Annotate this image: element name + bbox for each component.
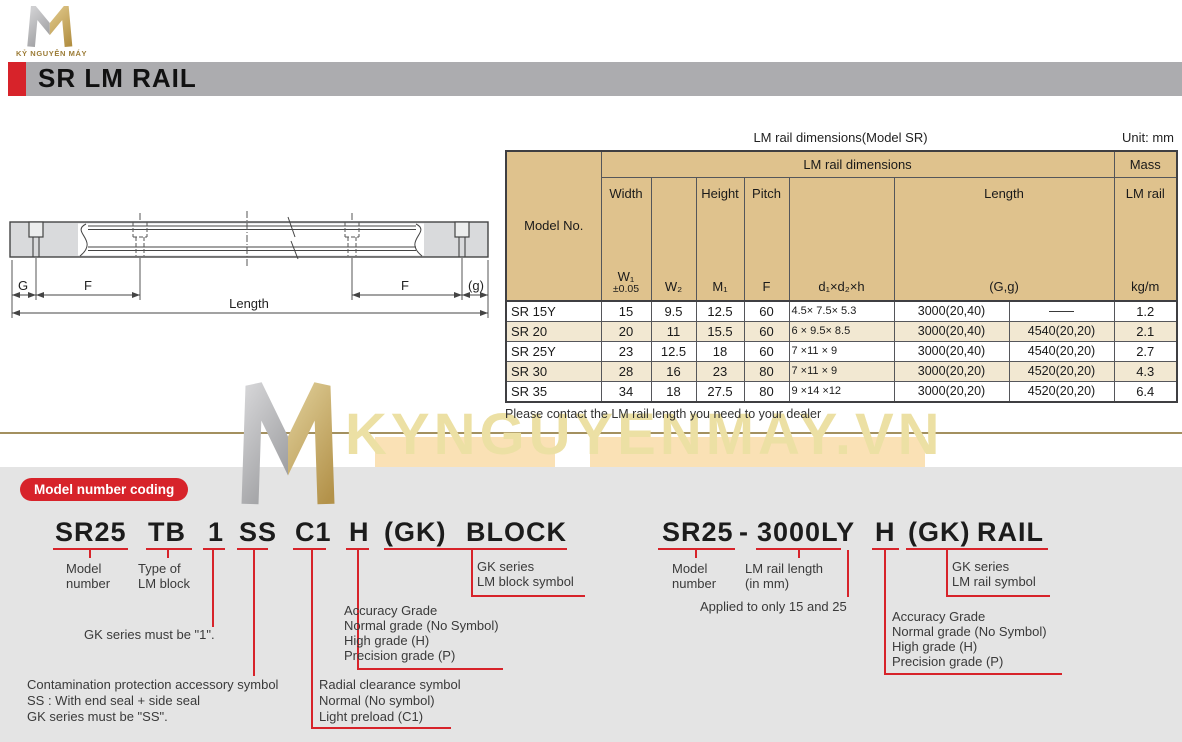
- cell-mass: 2.1: [1114, 321, 1177, 341]
- cell-w2: 18: [651, 381, 696, 402]
- length-top: Length: [984, 186, 1024, 201]
- col-header-model: Model No.: [506, 151, 601, 301]
- label-line: Normal grade (No Symbol): [344, 618, 499, 633]
- label-gk-series-block: GK series LM block symbol: [477, 559, 574, 589]
- cell-len2: 4520(20,20): [1009, 381, 1114, 402]
- label-line: Radial clearance symbol: [319, 677, 461, 693]
- cell-holes: 7 ×11 × 9: [789, 361, 894, 381]
- label-line: Precision grade (P): [892, 654, 1047, 669]
- callout-line: [798, 550, 800, 558]
- label-accuracy-grade-rail: Accuracy Grade Normal grade (No Symbol) …: [892, 609, 1047, 669]
- callout-line: [884, 550, 886, 673]
- underline: [203, 548, 225, 550]
- table-title: LM rail dimensions(Model SR): [505, 130, 1176, 145]
- table-row: SR 20 20 11 15.5 60 6 × 9.5× 8.5 3000(20…: [506, 321, 1177, 341]
- watermark-logo-icon: [236, 376, 340, 510]
- col-header-w1: Width W₁±0.05: [601, 177, 651, 301]
- note-applied: Applied to only 15 and 25: [700, 599, 847, 614]
- cell-holes: 9 ×14 ×12: [789, 381, 894, 402]
- code-token-gk: (GK): [908, 517, 970, 548]
- dim-label-f-right: F: [401, 278, 409, 293]
- cell-w1: 28: [601, 361, 651, 381]
- label-rail-length: LM rail length (in mm): [745, 561, 823, 591]
- underline: [293, 548, 326, 550]
- code-token-dash: -: [739, 517, 749, 548]
- table-row: SR 15Y 15 9.5 12.5 60 4.5× 7.5× 5.3 3000…: [506, 301, 1177, 322]
- code-token-model: SR25: [55, 517, 127, 548]
- underline: [384, 548, 567, 550]
- cell-mass: 2.7: [1114, 341, 1177, 361]
- label-radial-clearance: Radial clearance symbol Normal (No symbo…: [319, 677, 461, 725]
- cell-m1: 15.5: [696, 321, 744, 341]
- mass-sym: kg/m: [1131, 279, 1159, 294]
- label-type-of-block: Type of LM block: [138, 561, 202, 591]
- callout-line: [357, 668, 503, 670]
- label-line: Accuracy Grade: [892, 609, 1047, 624]
- note-gk-one: GK series must be "1".: [84, 627, 215, 642]
- underline: [146, 548, 192, 550]
- table-row: SR 25Y 23 12.5 18 60 7 ×11 × 9 3000(20,4…: [506, 341, 1177, 361]
- label-model-number: Model number: [66, 561, 124, 591]
- m1-sym: M₁: [712, 279, 727, 294]
- code-token-h: H: [875, 517, 896, 548]
- label-line: GK series: [952, 559, 1036, 574]
- underline: [906, 548, 1048, 550]
- f-sym: F: [763, 279, 771, 294]
- cell-len1: 3000(20,40): [894, 321, 1009, 341]
- code-token-h: H: [349, 517, 370, 548]
- cell-len2: ——: [1009, 301, 1114, 322]
- model-number-coding-badge: Model number coding: [20, 478, 188, 501]
- label-line: Normal grade (No Symbol): [892, 624, 1047, 639]
- cell-w2: 12.5: [651, 341, 696, 361]
- label-line: SS : With end seal + side seal: [27, 693, 278, 709]
- code-token-rail: RAIL: [977, 517, 1044, 548]
- label-line: High grade (H): [344, 633, 499, 648]
- cell-w2: 11: [651, 321, 696, 341]
- col-group-header: LM rail dimensions: [601, 151, 1114, 177]
- cell-m1: 27.5: [696, 381, 744, 402]
- callout-line: [946, 550, 948, 595]
- code-token-gk: (GK): [384, 517, 446, 548]
- code-token-model: SR25: [662, 517, 734, 548]
- cell-holes: 6 × 9.5× 8.5: [789, 321, 894, 341]
- cell-model: SR 30: [506, 361, 601, 381]
- w1-tol: ±0.05: [613, 284, 639, 294]
- code-token-c1: C1: [295, 517, 332, 548]
- dim-label-f-left: F: [84, 278, 92, 293]
- callout-line: [89, 550, 91, 558]
- header-accent-block: [8, 62, 26, 96]
- label-line: LM block symbol: [477, 574, 574, 589]
- label-model-number: Model number: [672, 561, 730, 591]
- label-line: (in mm): [745, 576, 823, 591]
- brand-name: KỶ NGUYÊN MÁY: [16, 49, 87, 58]
- col-header-mass: Mass: [1114, 151, 1177, 177]
- callout-line: [471, 550, 473, 595]
- cell-w2: 9.5: [651, 301, 696, 322]
- code-token-block: BLOCK: [466, 517, 567, 548]
- section-header-bar: SR LM RAIL: [8, 62, 1182, 96]
- dimensions-table-section: LM rail dimensions(Model SR) Unit: mm Mo…: [505, 130, 1176, 421]
- cell-holes: 7 ×11 × 9: [789, 341, 894, 361]
- cell-m1: 23: [696, 361, 744, 381]
- cell-f: 80: [744, 381, 789, 402]
- page-title: SR LM RAIL: [38, 63, 197, 94]
- cell-len2: 4520(20,20): [1009, 361, 1114, 381]
- label-line: Precision grade (P): [344, 648, 499, 663]
- label-gk-series-rail: GK series LM rail symbol: [952, 559, 1036, 589]
- cell-m1: 18: [696, 341, 744, 361]
- cell-mass: 1.2: [1114, 301, 1177, 322]
- cell-f: 60: [744, 341, 789, 361]
- w2-sym: W₂: [665, 279, 682, 294]
- col-header-f: PitchF: [744, 177, 789, 301]
- callout-line: [311, 550, 313, 729]
- table-row: SR 30 28 16 23 80 7 ×11 × 9 3000(20,20) …: [506, 361, 1177, 381]
- callout-line: [946, 595, 1050, 597]
- label-line: Contamination protection accessory symbo…: [27, 677, 278, 693]
- dim-label-g-small: (g): [468, 278, 484, 293]
- cell-holes: 4.5× 7.5× 5.3: [789, 301, 894, 322]
- w1-top: Width: [609, 186, 642, 201]
- col-header-w2: W₂: [651, 177, 696, 301]
- cell-f: 60: [744, 301, 789, 322]
- label-line: Normal (No symbol): [319, 693, 461, 709]
- col-header-m1: HeightM₁: [696, 177, 744, 301]
- cell-w1: 34: [601, 381, 651, 402]
- lm-rail-dimensions-table: Model No. LM rail dimensions Mass Width …: [505, 150, 1178, 403]
- cell-model: SR 15Y: [506, 301, 601, 322]
- code-token-one: 1: [208, 517, 224, 548]
- cell-w1: 15: [601, 301, 651, 322]
- rail-technical-drawing: G F F (g) Length: [0, 190, 500, 330]
- cell-mass: 6.4: [1114, 381, 1177, 402]
- brand-logo-icon: [16, 6, 88, 50]
- label-line: High grade (H): [892, 639, 1047, 654]
- cell-w1: 23: [601, 341, 651, 361]
- callout-line: [311, 727, 451, 729]
- cell-w1: 20: [601, 321, 651, 341]
- callout-line: [471, 595, 585, 597]
- label-line: GK series must be "SS".: [27, 709, 278, 725]
- cell-len2: 4540(20,20): [1009, 341, 1114, 361]
- cell-len2: 4540(20,20): [1009, 321, 1114, 341]
- label-line: Accuracy Grade: [344, 603, 499, 618]
- code-token-type: TB: [148, 517, 186, 548]
- label-line: Light preload (C1): [319, 709, 461, 725]
- col-header-length: Length(G,g): [894, 177, 1114, 301]
- label-line: GK series: [477, 559, 574, 574]
- cell-len1: 3000(20,20): [894, 381, 1009, 402]
- w1-sym: W₁: [618, 269, 635, 284]
- callout-line: [212, 550, 214, 627]
- cell-len1: 3000(20,40): [894, 301, 1009, 322]
- cell-w2: 16: [651, 361, 696, 381]
- callout-line: [253, 550, 255, 676]
- cell-model: SR 35: [506, 381, 601, 402]
- m1-top: Height: [701, 186, 739, 201]
- callout-line: [884, 673, 1062, 675]
- code-token-length: 3000LY: [757, 517, 855, 548]
- table-note: Please contact the LM rail length you ne…: [505, 407, 1176, 421]
- callout-line: [847, 550, 849, 597]
- f-top: Pitch: [752, 186, 781, 201]
- cell-len1: 3000(20,20): [894, 361, 1009, 381]
- label-line: LM rail symbol: [952, 574, 1036, 589]
- label-line: LM rail length: [745, 561, 823, 576]
- callout-line: [167, 550, 169, 558]
- table-row: SR 35 34 18 27.5 80 9 ×14 ×12 3000(20,20…: [506, 381, 1177, 402]
- cell-m1: 12.5: [696, 301, 744, 322]
- cell-model: SR 20: [506, 321, 601, 341]
- dim-label-g: G: [18, 278, 28, 293]
- callout-line: [695, 550, 697, 558]
- table-unit: Unit: mm: [1122, 130, 1174, 145]
- code-token-ss: SS: [239, 517, 277, 548]
- col-header-holes: d₁×d₂×h: [789, 177, 894, 301]
- cell-model: SR 25Y: [506, 341, 601, 361]
- col-header-massunit: LM railkg/m: [1114, 177, 1177, 301]
- cell-len1: 3000(20,40): [894, 341, 1009, 361]
- cell-f: 60: [744, 321, 789, 341]
- cell-f: 80: [744, 361, 789, 381]
- mass-top: LM rail: [1126, 186, 1165, 201]
- holes-sym: d₁×d₂×h: [818, 279, 864, 294]
- length-sym: (G,g): [989, 279, 1019, 294]
- cell-mass: 4.3: [1114, 361, 1177, 381]
- label-contamination: Contamination protection accessory symbo…: [27, 677, 278, 725]
- catalog-page: KỶ NGUYÊN MÁY SR LM RAIL: [0, 0, 1182, 742]
- dim-label-length: Length: [229, 296, 269, 311]
- label-accuracy-grade-block: Accuracy Grade Normal grade (No Symbol) …: [344, 603, 499, 663]
